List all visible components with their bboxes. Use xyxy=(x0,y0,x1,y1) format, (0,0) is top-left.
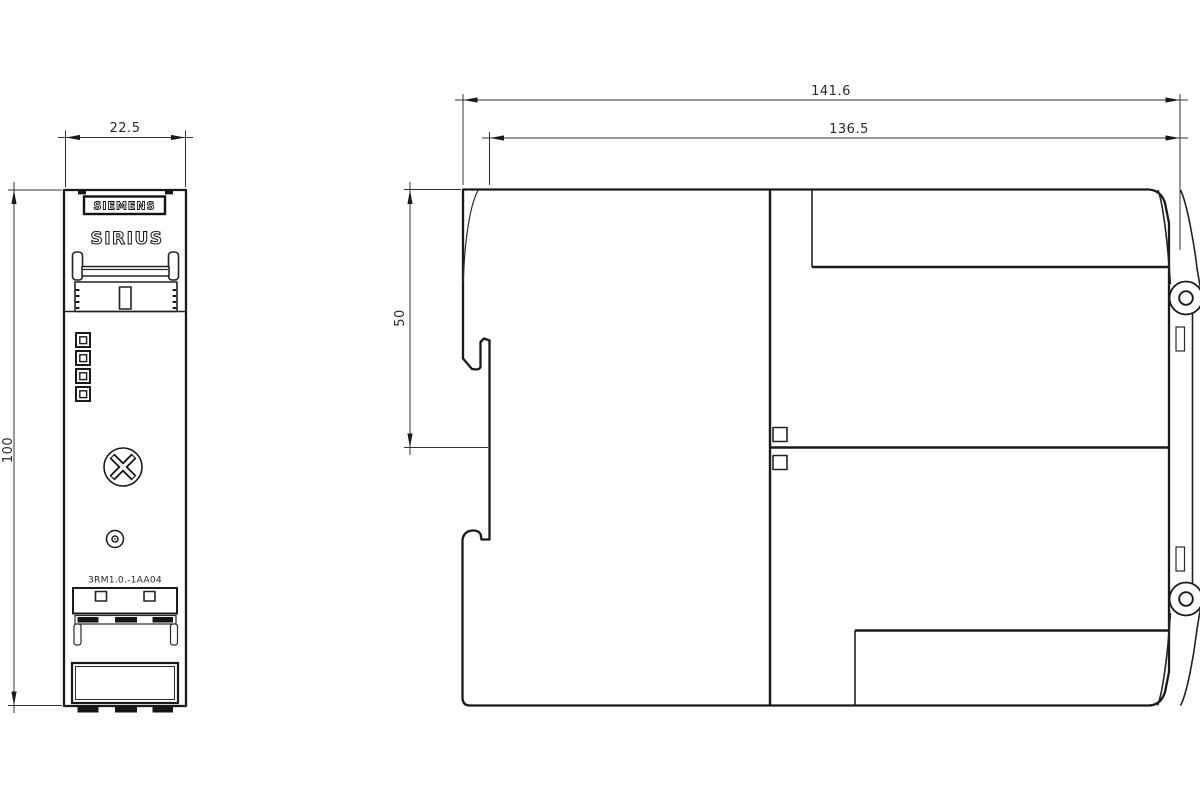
arrow-down-icon xyxy=(11,692,16,706)
clamp-tab-right xyxy=(171,624,178,645)
top-tick xyxy=(78,191,86,195)
test-point-icon xyxy=(107,531,124,548)
arrow-up-icon xyxy=(11,190,16,204)
latch-tab-left xyxy=(73,252,83,280)
dim-height: 100 xyxy=(1,182,62,713)
panel-outline xyxy=(73,588,177,614)
led-indicator xyxy=(76,351,90,365)
latch-tab-right xyxy=(169,252,179,280)
latch-bar xyxy=(82,267,169,277)
model-label: 3RM1.0.-1AA04 xyxy=(88,575,162,586)
arrow-right-icon xyxy=(1166,97,1180,102)
arrow-left-icon xyxy=(66,135,80,140)
label-frame xyxy=(72,663,178,703)
arrow-down-icon xyxy=(407,434,412,448)
dim-width-label: 22.5 xyxy=(110,121,141,136)
arrow-left-icon xyxy=(464,97,478,102)
lever-arm-right-edge xyxy=(1181,190,1200,287)
contact xyxy=(78,617,99,623)
arrow-up-icon xyxy=(407,190,412,204)
selector-screw-icon xyxy=(104,448,142,486)
dim-rail-section-label: 50 xyxy=(393,309,408,327)
side-view: 141.6 136.5 50 xyxy=(393,84,1200,706)
contact xyxy=(153,617,174,623)
dimension-drawing: 22.5 100 SIEMENS SIRIUS xyxy=(0,0,1200,800)
led-indicator xyxy=(76,387,90,401)
label-area xyxy=(72,663,178,703)
front-view: 22.5 100 SIEMENS SIRIUS xyxy=(1,121,193,713)
pivot-hole xyxy=(1179,592,1193,606)
arrow-right-icon xyxy=(171,135,185,140)
led-indicator xyxy=(76,369,90,383)
side-body xyxy=(463,190,1170,706)
siemens-logo-text: SIEMENS xyxy=(93,200,155,213)
arrow-left-icon xyxy=(490,135,504,140)
slider-slot-upper xyxy=(1176,327,1185,351)
lever-arm-right-edge xyxy=(1181,610,1200,706)
arrow-right-icon xyxy=(1166,135,1180,140)
dim-body-width: 136.5 xyxy=(482,122,1188,185)
technical-drawing-page: 22.5 100 SIEMENS SIRIUS xyxy=(0,0,1200,800)
bottom-feet xyxy=(78,707,174,713)
contact xyxy=(115,617,137,623)
clamp-tab-left xyxy=(74,624,81,645)
dim-height-label: 100 xyxy=(1,437,16,463)
upper-terminal-panel xyxy=(64,282,186,312)
slider-slot-lower xyxy=(1176,547,1185,571)
sirius-label: SIRIUS xyxy=(90,229,163,249)
led-indicator xyxy=(76,333,90,347)
siemens-logo: SIEMENS xyxy=(84,197,165,215)
front-module: SIEMENS SIRIUS xyxy=(64,190,186,713)
dim-width: 22.5 xyxy=(58,121,193,187)
pivot-hole xyxy=(1179,291,1193,305)
dim-total-width-label: 141.6 xyxy=(811,84,851,99)
dim-body-width-label: 136.5 xyxy=(829,122,869,137)
top-tick xyxy=(165,191,173,195)
lower-terminal-panel xyxy=(73,588,177,614)
